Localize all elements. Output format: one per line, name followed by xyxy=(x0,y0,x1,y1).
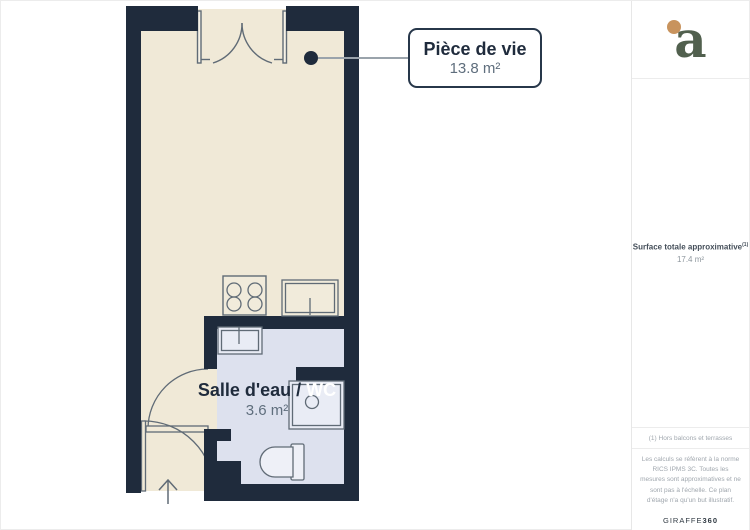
total-area-value: 17.4 m² xyxy=(677,255,704,264)
logo-letter: a xyxy=(674,10,706,69)
brand-name: GIRAFFE xyxy=(663,516,703,525)
living-room-name: Pièce de vie xyxy=(423,39,526,60)
leader-dot xyxy=(304,51,318,65)
agency-logo-section: a xyxy=(632,1,749,79)
footnote-section: (1) Hors balcons et terrasses xyxy=(632,428,749,449)
agency-logo: a xyxy=(674,15,706,65)
bathroom-name: Salle d'eau / WC xyxy=(189,380,345,401)
bathroom-label: Salle d'eau / WC 3.6 m² xyxy=(189,380,345,420)
kitchen-sink xyxy=(282,280,338,316)
brand-suffix: 360 xyxy=(703,516,719,525)
brand-logo: GIRAFFE360 xyxy=(663,516,718,525)
living-room-label: Pièce de vie 13.8 m² xyxy=(408,28,542,88)
footnote-text: (1) Hors balcons et terrasses xyxy=(649,435,732,442)
cooktop xyxy=(223,276,266,315)
bathroom-name-wc: WC xyxy=(306,380,336,400)
info-sidebar: a Surface totale approximative(1) 17.4 m… xyxy=(631,1,749,530)
bathroom-area: 3.6 m² xyxy=(189,401,345,420)
logo-dot-icon xyxy=(667,20,681,34)
disclaimer-section: Les calculs se réfèrent à la norme RICS … xyxy=(632,449,749,530)
toilet xyxy=(260,444,304,480)
washbasin xyxy=(218,327,262,354)
total-area-title: Surface totale approximative(1) xyxy=(633,242,749,252)
total-area-section: Surface totale approximative(1) 17.4 m² xyxy=(632,79,749,428)
living-room-area: 13.8 m² xyxy=(450,60,501,78)
floorplan-page: Pièce de vie 13.8 m² Salle d'eau / WC 3.… xyxy=(0,0,750,530)
footnote-reference: (1) xyxy=(742,242,748,248)
disclaimer-text: Les calculs se réfèrent à la norme RICS … xyxy=(640,455,742,505)
